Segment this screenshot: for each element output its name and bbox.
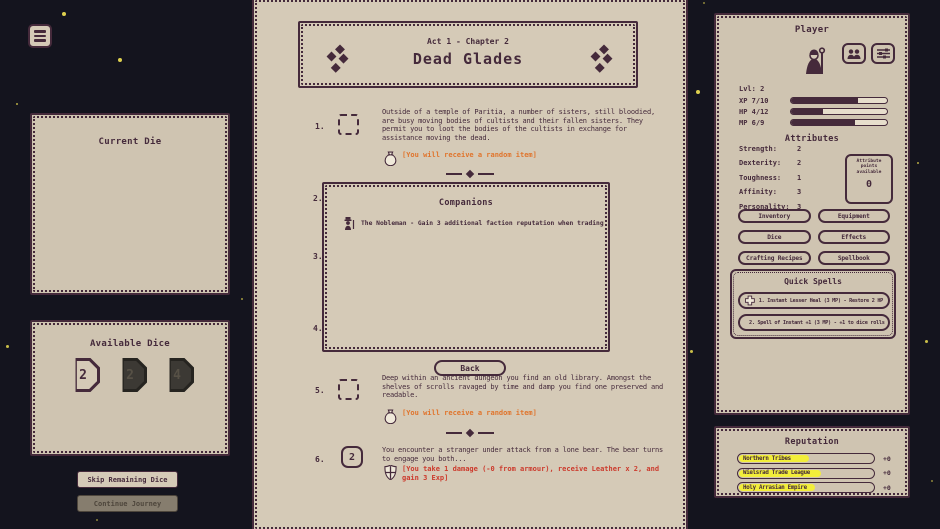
- player-level: Lvl: 2: [739, 85, 764, 93]
- quick-spells-box: Quick Spells 1. Instant Lesser Heal (3 M…: [730, 269, 896, 339]
- attribute-row: Strength:2: [739, 145, 834, 159]
- hp-label: HP 4/12: [739, 108, 769, 116]
- loot-pouch-icon: [384, 151, 397, 166]
- reputation-value: +0: [883, 484, 891, 492]
- attribute-name: Affinity:: [739, 188, 797, 202]
- attribute-value: 1: [797, 174, 801, 188]
- companions-box: Companions The Nobleman - Gain 3 additio…: [322, 182, 610, 352]
- star: [6, 345, 9, 348]
- divider-line: [478, 432, 494, 434]
- companions-title: Companions: [324, 198, 608, 208]
- current-die-panel: Current Die: [30, 113, 230, 295]
- attribute-value: 3: [797, 188, 801, 202]
- chapter-title: Dead Glades: [300, 50, 636, 68]
- mp-bar: [790, 119, 888, 126]
- combat-shield-icon: [384, 465, 397, 480]
- reputation-panel: Reputation Northern Tribes +0 Wielsrad T…: [714, 426, 910, 498]
- die-used: 2: [113, 358, 147, 392]
- slot-1-die-socket[interactable]: [338, 114, 359, 135]
- reward-row-5: [You will receive a random item]: [384, 409, 537, 424]
- effects-button[interactable]: Effects: [818, 230, 891, 244]
- quick-spell-2-label: 2. Spell of Instant +1 (3 MP) - +1 to di…: [749, 320, 885, 326]
- star: [16, 103, 18, 105]
- player-wizard-sprite: [802, 47, 828, 75]
- menu-buttons-grid: Inventory Equipment Dice Effects Craftin…: [738, 209, 890, 265]
- loot-pouch-icon: [384, 409, 397, 424]
- available-dice-title: Available Dice: [32, 339, 228, 349]
- quick-spell-1-button[interactable]: 1. Instant Lesser Heal (3 MP) - Restore …: [738, 292, 890, 309]
- available-dice-panel: Available Dice 2 2 4: [30, 320, 230, 456]
- die-value: 2: [116, 361, 144, 389]
- reputation-bar: Wielsrad Trade League: [737, 468, 875, 479]
- player-title: Player: [716, 25, 908, 35]
- hp-bar: [790, 108, 888, 115]
- companion-entry: The Nobleman - Gain 3 additional faction…: [344, 217, 604, 230]
- quick-spell-2-button[interactable]: 2. Spell of Instant +1 (3 MP) - +1 to di…: [738, 314, 890, 331]
- story-text-1: Outside of a temple of Paritia, a number…: [382, 108, 670, 142]
- current-die-title: Current Die: [32, 137, 228, 147]
- attribute-value: 2: [797, 159, 801, 173]
- chapter-act: Act 1 - Chapter 2: [300, 37, 636, 46]
- inventory-button[interactable]: Inventory: [738, 209, 811, 223]
- reputation-value: +0: [883, 455, 891, 463]
- section-divider: [252, 171, 688, 177]
- faction-name: Holy Arrasian Empire: [739, 484, 815, 491]
- star: [917, 162, 919, 164]
- reputation-row: Wielsrad Trade League +0: [737, 468, 907, 479]
- result-row-6: [You take 1 damage (-0 from armour), rec…: [384, 465, 664, 482]
- hamburger-icon: [34, 35, 46, 38]
- quick-spell-1-label: 1. Instant Lesser Heal (3 MP) - Restore …: [759, 298, 883, 304]
- die-active[interactable]: 2: [66, 358, 100, 392]
- party-icon: [847, 49, 861, 59]
- chapter-header: Act 1 - Chapter 2 Dead Glades: [298, 21, 638, 88]
- result-text-6: [You take 1 damage (-0 from armour), rec…: [402, 465, 664, 482]
- mp-label: MP 6/9: [739, 119, 764, 127]
- slot-6-placed-die[interactable]: 2: [341, 446, 363, 468]
- attribute-row: Dexterity:2: [739, 159, 834, 173]
- stats-button[interactable]: [871, 43, 895, 64]
- divider-line: [446, 432, 462, 434]
- story-text-6: You encounter a stranger under attack fr…: [382, 446, 674, 463]
- star: [241, 298, 243, 300]
- reputation-rows: Northern Tribes +0 Wielsrad Trade League…: [737, 453, 907, 493]
- equipment-button[interactable]: Equipment: [818, 209, 891, 223]
- menu-button[interactable]: [28, 24, 52, 48]
- attribute-row: Toughness:1: [739, 174, 834, 188]
- faction-name: Wielsrad Trade League: [739, 470, 821, 477]
- dice-button[interactable]: Dice: [738, 230, 811, 244]
- mp-bar-fill: [791, 120, 855, 125]
- slot-number-5: 5.: [315, 386, 325, 395]
- story-text-5: Deep within an ancient dungeon you find …: [382, 374, 670, 400]
- attribute-name: Toughness:: [739, 174, 797, 188]
- reward-text-5: [You will receive a random item]: [402, 409, 537, 418]
- attribute-row: Affinity:3: [739, 188, 834, 202]
- divider-line: [478, 173, 494, 175]
- dice-row: 2 2 4: [32, 358, 228, 392]
- divider-diamond-icon: [466, 170, 474, 178]
- star: [690, 350, 693, 353]
- attribute-points-label: Attribute points available: [847, 159, 891, 175]
- star: [931, 480, 933, 482]
- attribute-points-box: Attribute points available 0: [845, 154, 893, 204]
- heal-plus-icon: [745, 295, 755, 306]
- reward-row-1: [You will receive a random item]: [384, 151, 537, 166]
- continue-journey-button[interactable]: Continue Journey: [77, 495, 178, 512]
- reputation-bar: Northern Tribes: [737, 453, 875, 464]
- reputation-row: Holy Arrasian Empire +0: [737, 482, 907, 493]
- party-button[interactable]: [842, 43, 866, 64]
- reputation-row: Northern Tribes +0: [737, 453, 907, 464]
- game-screen: Current Die Available Dice 2 2 4 Skip Re…: [0, 0, 940, 529]
- reputation-value: +0: [883, 469, 891, 477]
- attribute-points-value: 0: [866, 179, 872, 190]
- reward-text-1: [You will receive a random item]: [402, 151, 537, 160]
- star: [703, 2, 705, 4]
- spellbook-button[interactable]: Spellbook: [818, 251, 891, 265]
- attributes-list: Strength:2 Dexterity:2 Toughness:1 Affin…: [739, 145, 834, 217]
- die-value: 4: [163, 361, 191, 389]
- reputation-bar: Holy Arrasian Empire: [737, 482, 875, 493]
- star: [696, 90, 700, 94]
- hamburger-icon: [34, 39, 46, 42]
- die-used: 4: [160, 358, 194, 392]
- crafting-recipes-button[interactable]: Crafting Recipes: [738, 251, 811, 265]
- slot-5-die-socket[interactable]: [338, 379, 359, 400]
- star: [62, 12, 66, 16]
- reputation-title: Reputation: [716, 437, 908, 447]
- divider-line: [446, 173, 462, 175]
- skip-remaining-dice-button[interactable]: Skip Remaining Dice: [77, 471, 178, 488]
- star: [96, 519, 98, 521]
- hamburger-icon: [34, 30, 46, 33]
- companion-nobleman-icon: [344, 217, 355, 230]
- divider-diamond-icon: [466, 429, 474, 437]
- hp-bar-fill: [791, 109, 823, 114]
- faction-name: Northern Tribes: [739, 455, 809, 462]
- attribute-name: Dexterity:: [739, 159, 797, 173]
- quick-spells-title: Quick Spells: [732, 277, 894, 286]
- sliders-icon: [877, 48, 890, 59]
- die-value: 2: [69, 361, 97, 389]
- xp-bar-fill: [791, 98, 858, 103]
- slot-number-1: 1.: [315, 122, 325, 131]
- attribute-name: Strength:: [739, 145, 797, 159]
- attribute-value: 2: [797, 145, 801, 159]
- player-panel: Player Lvl: 2 XP 7/10 HP 4/12 MP 6/9 Att…: [714, 13, 910, 415]
- xp-bar: [790, 97, 888, 104]
- xp-label: XP 7/10: [739, 97, 769, 105]
- star: [925, 340, 928, 343]
- attributes-title: Attributes: [716, 134, 908, 144]
- section-divider: [252, 430, 688, 436]
- slot-number-6: 6.: [315, 455, 325, 464]
- companion-entry-text: The Nobleman - Gain 3 additional faction…: [361, 217, 604, 227]
- star: [118, 58, 122, 62]
